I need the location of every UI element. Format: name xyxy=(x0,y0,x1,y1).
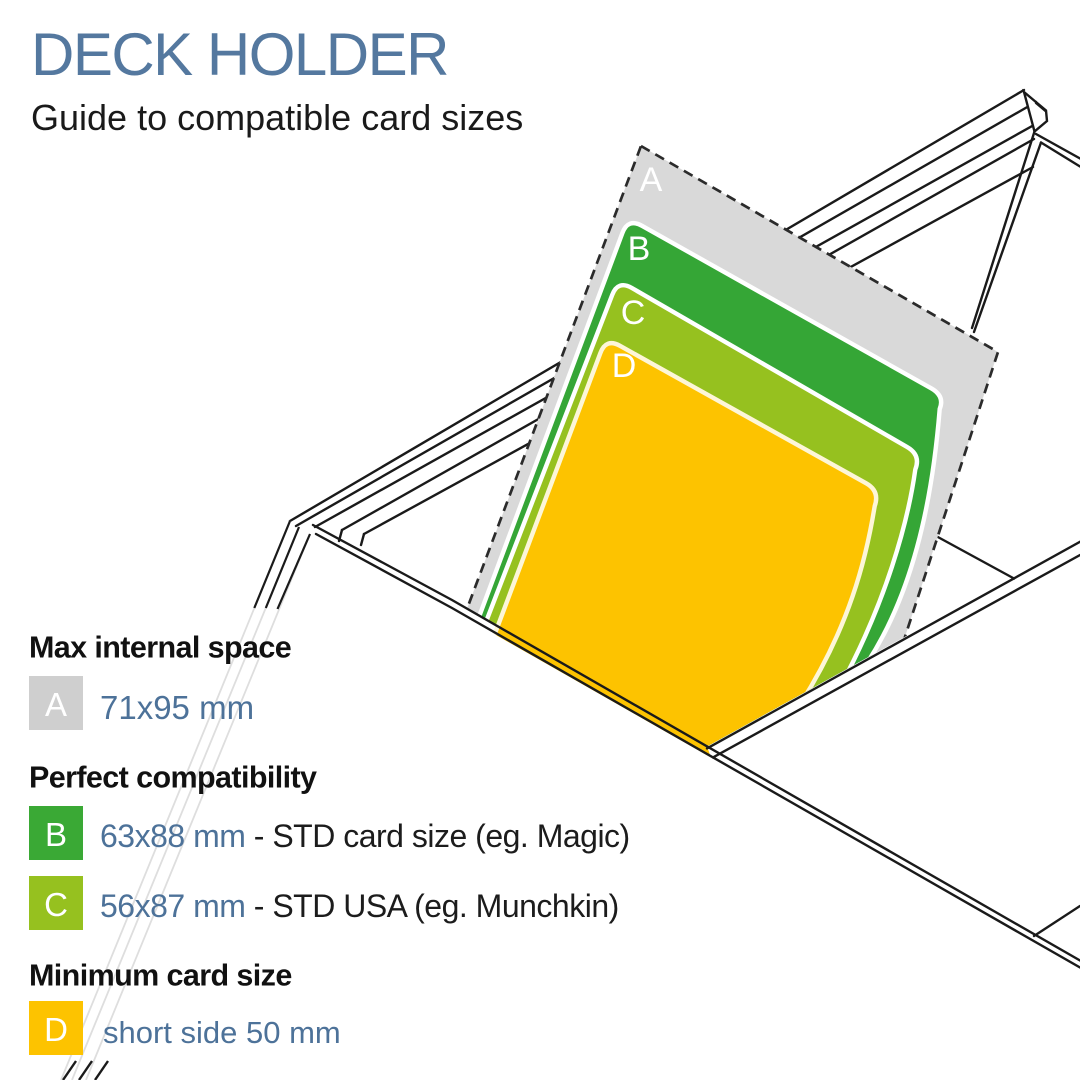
svg-text:Minimum card size: Minimum card size xyxy=(29,959,292,993)
svg-text:B: B xyxy=(628,230,651,268)
svg-text:short side 50 mm: short side 50 mm xyxy=(103,1015,341,1050)
svg-text:D: D xyxy=(44,1011,68,1048)
svg-text:D: D xyxy=(612,347,637,385)
svg-text:Guide to compatible card sizes: Guide to compatible card sizes xyxy=(31,97,523,138)
svg-text:Perfect compatibility: Perfect compatibility xyxy=(29,761,317,795)
svg-text:56x87 mm - STD USA (eg. Munchk: 56x87 mm - STD USA (eg. Munchkin) xyxy=(100,888,619,924)
svg-text:63x88 mm - STD card size (eg.: 63x88 mm - STD card size (eg. Magic) xyxy=(100,818,630,854)
svg-text:DECK HOLDER: DECK HOLDER xyxy=(31,21,448,88)
svg-text:A: A xyxy=(640,161,663,199)
svg-text:71x95 mm: 71x95 mm xyxy=(100,689,254,726)
svg-text:A: A xyxy=(45,686,67,723)
svg-text:Max internal space: Max internal space xyxy=(29,631,291,665)
svg-text:C: C xyxy=(44,886,68,923)
svg-text:C: C xyxy=(621,294,646,332)
svg-text:B: B xyxy=(45,816,67,853)
